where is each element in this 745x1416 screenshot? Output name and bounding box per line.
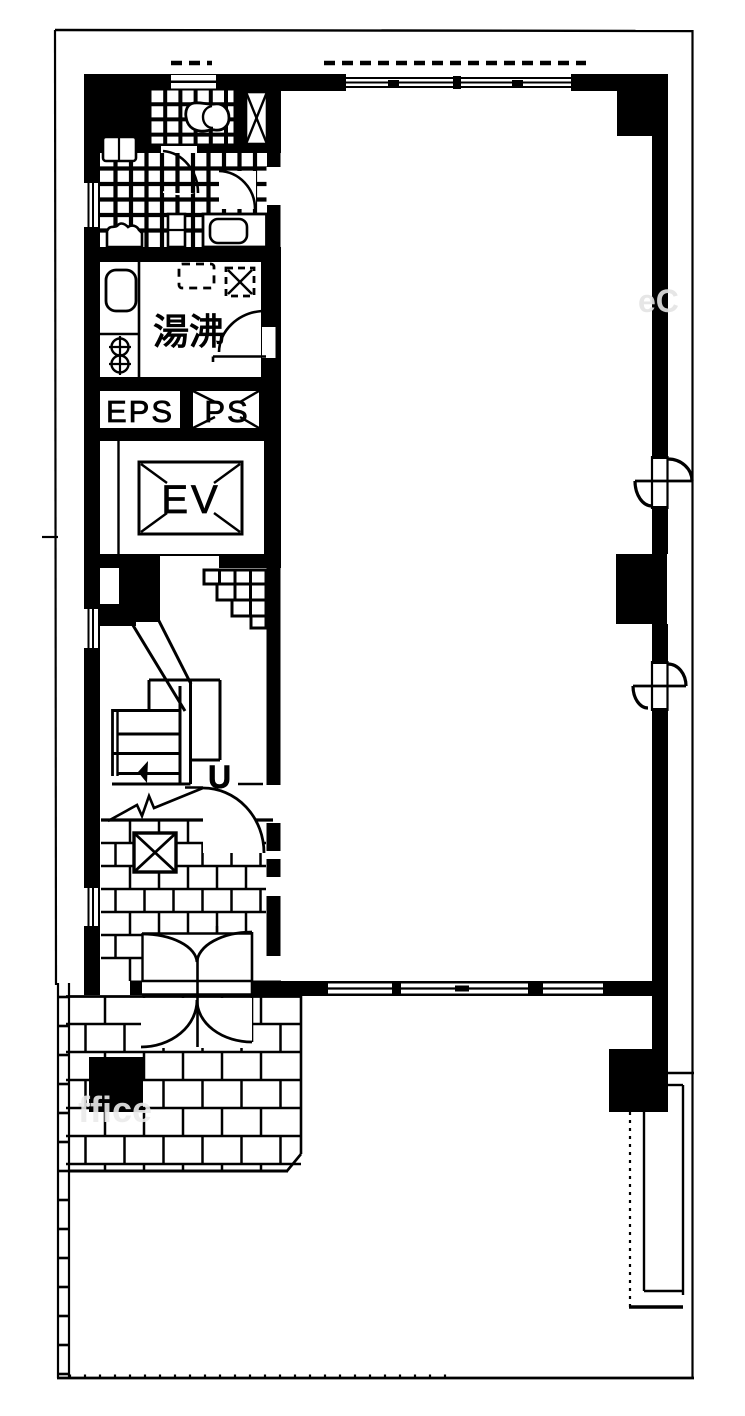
svg-text:eC: eC [638, 283, 679, 319]
svg-text:湯沸: 湯沸 [153, 311, 225, 352]
svg-text:PS: PS [204, 394, 249, 429]
svg-text:EPS: EPS [106, 394, 174, 429]
svg-text:EV: EV [161, 478, 220, 522]
svg-text:ffice: ffice [78, 1089, 152, 1130]
